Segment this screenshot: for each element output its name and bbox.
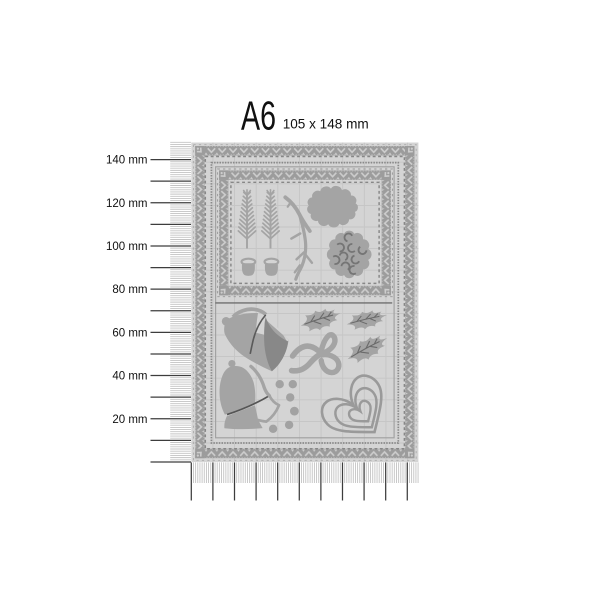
svg-text:20 mm: 20 mm <box>112 414 147 426</box>
svg-text:A6: A6 <box>241 92 276 138</box>
svg-text:40 mm: 40 mm <box>112 371 147 383</box>
svg-text:100 mm: 100 mm <box>106 241 148 253</box>
svg-text:60 mm: 60 mm <box>112 327 147 339</box>
svg-text:80 mm: 80 mm <box>112 284 147 296</box>
svg-text:140 mm: 140 mm <box>106 155 148 167</box>
svg-text:120 mm: 120 mm <box>106 198 148 210</box>
svg-text:105 x 148 mm: 105 x 148 mm <box>283 116 369 131</box>
